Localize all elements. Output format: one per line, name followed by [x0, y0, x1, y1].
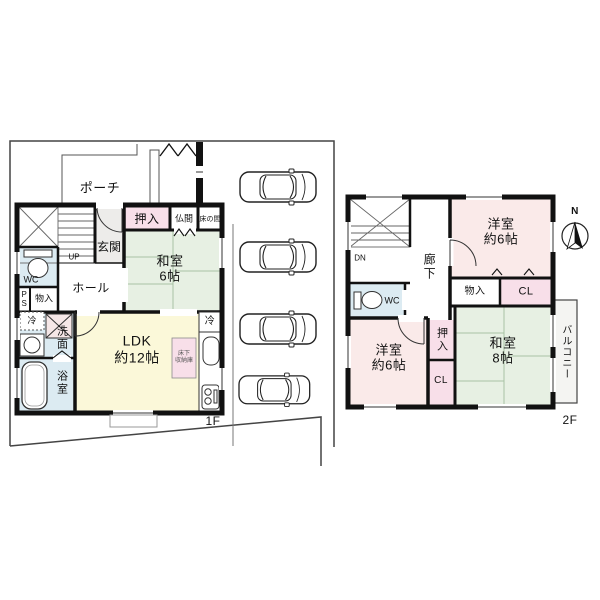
label-butsuma: 仏間 [175, 214, 193, 225]
compass-icon [562, 222, 588, 249]
label-wc-1f: WC [24, 275, 39, 286]
label-porch: ポーチ [80, 180, 121, 195]
label-ldk: LDK 約12帖 [114, 332, 160, 365]
toilet-icon-2f [354, 292, 382, 310]
car-icon [240, 311, 316, 347]
label-oshiire-2f: 押入 [435, 327, 448, 353]
label-storage-2f: 物入 [465, 286, 486, 298]
label-yoshitsu-ne: 洋室 約6帖 [484, 217, 519, 248]
entrance-step [110, 415, 157, 427]
label-hall: ホール [72, 281, 110, 295]
label-senmen: 洗面 [55, 325, 68, 351]
porch-column [150, 150, 159, 205]
label-corridor: 廊下 [422, 253, 436, 281]
label-floor-1f: 1F [205, 414, 220, 428]
label-pipe-space: PS [19, 290, 28, 308]
car-icon [240, 239, 316, 275]
label-balcony: バルコニー [559, 325, 571, 380]
label-tokonoma: 床の間 [200, 216, 221, 224]
floorplan-canvas [0, 0, 600, 600]
label-cl-bottom: CL [434, 375, 448, 387]
label-oshiire-1f: 押入 [134, 212, 159, 226]
label-cl-top: CL [518, 286, 533, 299]
car-icon [239, 373, 310, 406]
label-yoshitsu-sw: 洋室 約6帖 [372, 343, 407, 374]
label-yokushitsu: 浴室 [55, 370, 68, 396]
car-icon [240, 169, 316, 205]
label-genkan: 玄関 [97, 240, 121, 254]
label-stairs-down: DN [354, 253, 366, 262]
gate-icon [160, 144, 196, 156]
label-storage-1f: 物入 [35, 294, 53, 305]
stove-icon [202, 385, 219, 409]
house-2f [345, 194, 577, 410]
house-1f [14, 202, 225, 427]
label-stairs-up: UP [68, 252, 79, 261]
label-fridge-left: 冷 [27, 316, 36, 327]
label-wc-2f: WC [385, 296, 400, 307]
label-compass-n: N [571, 206, 579, 218]
label-washitsu-6: 和室 6帖 [156, 254, 183, 285]
parking-area [233, 169, 316, 446]
kitchen-sink-icon [203, 337, 219, 365]
room-genkan [95, 205, 124, 263]
bathtub-icon [22, 362, 47, 409]
label-underfloor-storage: 床下 収納庫 [175, 351, 193, 365]
label-fridge-kitchen: 冷 [205, 316, 216, 328]
floorplan-page: ポーチ 押入 仏間 床の間 玄関 UP WC PS 物入 ホール 和室 6帖 冷… [0, 0, 600, 600]
washbasin-icon [20, 334, 44, 356]
label-floor-2f: 2F [562, 413, 577, 427]
label-washitsu-8: 和室 8帖 [489, 336, 516, 367]
